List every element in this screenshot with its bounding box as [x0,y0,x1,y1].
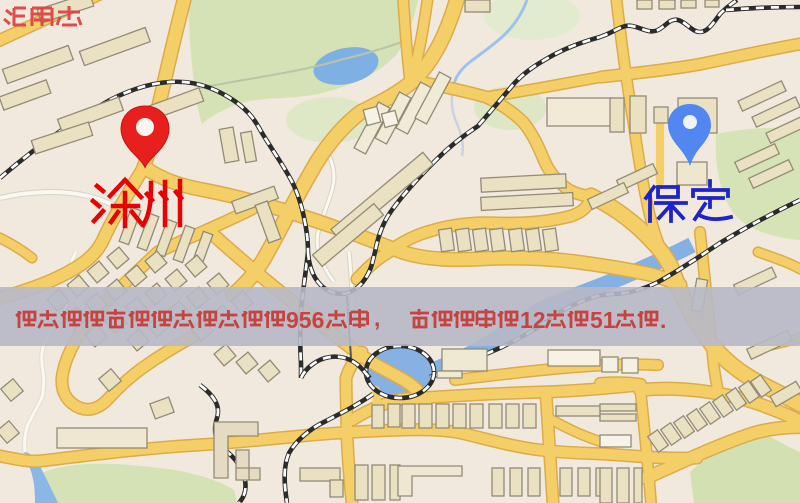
svg-text:12: 12 [520,307,546,333]
svg-text:,: , [374,305,380,331]
svg-text:51: 51 [590,307,616,333]
svg-text:956: 956 [286,307,324,333]
svg-text:.: . [660,307,666,333]
